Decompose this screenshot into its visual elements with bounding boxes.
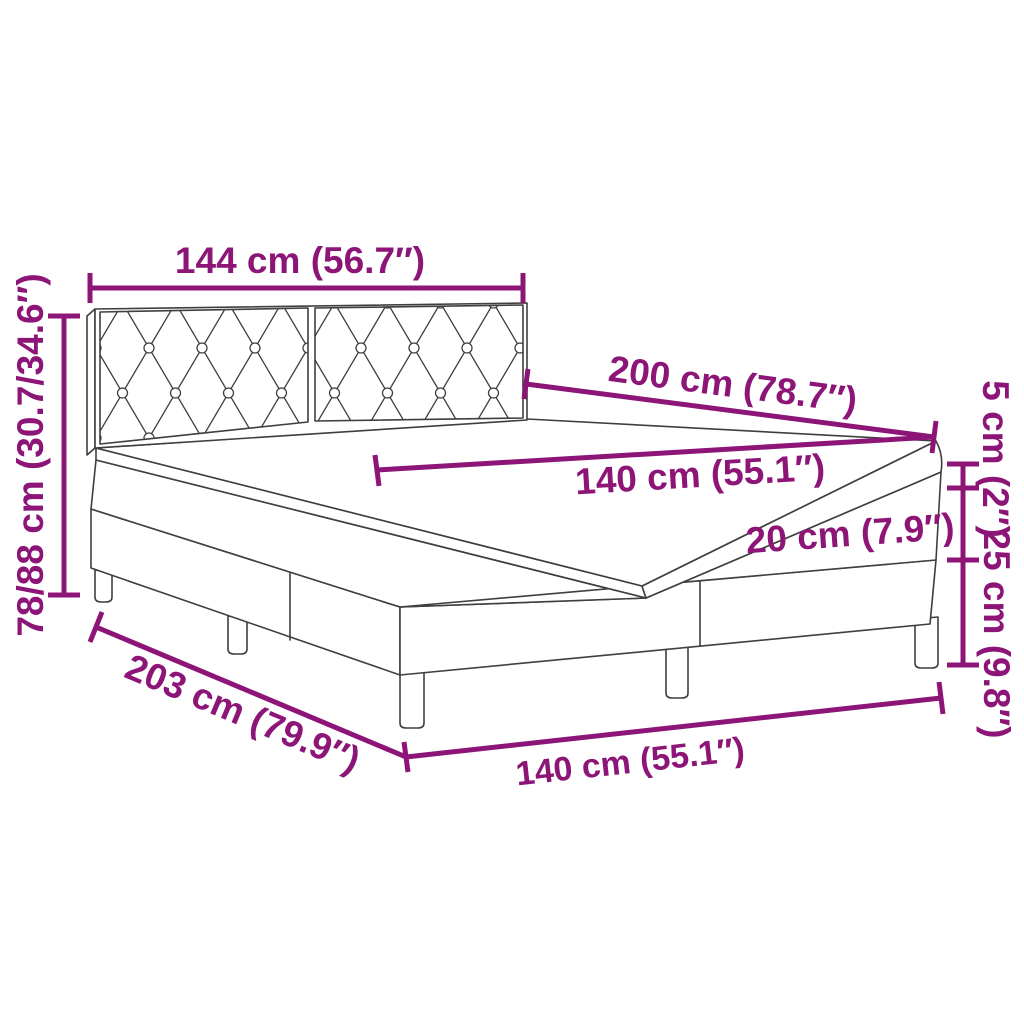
label-base-height: 25 cm (9.8″) (976, 530, 1017, 739)
bed-dimension-diagram: 144 cm (56.7″) 78/88 cm (30.7/34.6″) 200… (0, 0, 1024, 1024)
bed-dimension-diagram-page: 144 cm (56.7″) 78/88 cm (30.7/34.6″) 200… (0, 0, 1024, 1024)
label-headboard-width: 144 cm (56.7″) (175, 240, 425, 281)
headboard-panel-left (100, 308, 308, 444)
bed-leg (666, 643, 688, 698)
label-total-height: 78/88 cm (30.7/34.6″) (10, 273, 51, 636)
headboard-panel-right (315, 305, 523, 421)
headboard-side-bevel (87, 309, 95, 455)
dim-line-total-height (48, 316, 80, 595)
bed-leg (400, 671, 424, 728)
dim-line-topper-and-base-height (947, 464, 979, 665)
label-base-length: 203 cm (79.9″) (120, 646, 366, 781)
label-topper-thickness: 5 cm (2″) (975, 380, 1016, 538)
